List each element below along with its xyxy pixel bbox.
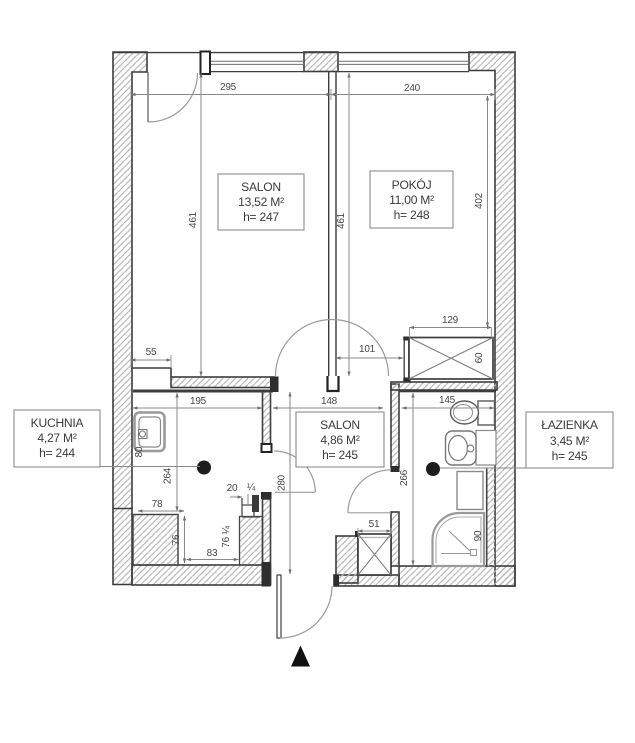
svg-text:h= 244: h= 244	[39, 446, 75, 460]
svg-text:83: 83	[207, 548, 218, 559]
svg-text:78: 78	[152, 499, 163, 510]
svg-text:51: 51	[369, 519, 380, 530]
svg-text:129: 129	[442, 315, 459, 326]
svg-text:295: 295	[220, 82, 237, 93]
svg-text:11,00 M²: 11,00 M²	[389, 193, 434, 207]
svg-text:145: 145	[439, 395, 456, 406]
svg-text:h= 247: h= 247	[243, 210, 279, 224]
svg-text:4,27 M²: 4,27 M²	[37, 431, 76, 445]
svg-text:¼: ¼	[247, 481, 256, 493]
svg-text:101: 101	[359, 344, 376, 355]
svg-text:76 ¼: 76 ¼	[220, 525, 232, 547]
svg-text:h= 248: h= 248	[394, 208, 430, 222]
svg-text:266: 266	[399, 469, 410, 486]
svg-text:h= 245: h= 245	[322, 448, 358, 462]
svg-text:195: 195	[190, 396, 207, 407]
svg-text:240: 240	[404, 83, 421, 94]
svg-text:ŁAZIENKA: ŁAZIENKA	[541, 418, 599, 432]
svg-text:3,45 M²: 3,45 M²	[550, 434, 589, 448]
svg-text:148: 148	[321, 396, 338, 407]
svg-text:KUCHNIA: KUCHNIA	[31, 416, 85, 430]
svg-text:SALON: SALON	[241, 180, 281, 194]
svg-text:264: 264	[163, 467, 174, 484]
svg-text:60: 60	[474, 352, 485, 363]
svg-text:80: 80	[134, 446, 145, 457]
svg-text:280: 280	[277, 474, 288, 491]
svg-text:h= 245: h= 245	[552, 449, 588, 463]
svg-text:55: 55	[146, 347, 157, 358]
svg-text:461: 461	[336, 212, 347, 229]
svg-text:SALON: SALON	[320, 418, 360, 432]
svg-text:76: 76	[171, 534, 182, 545]
svg-text:4,86 M²: 4,86 M²	[320, 433, 359, 447]
svg-text:90: 90	[473, 530, 484, 541]
svg-text:20: 20	[227, 483, 238, 494]
svg-text:402: 402	[474, 192, 485, 209]
svg-text:461: 461	[188, 211, 199, 228]
svg-text:13,52 M²: 13,52 M²	[238, 195, 284, 209]
svg-text:POKÓJ: POKÓJ	[392, 177, 432, 192]
